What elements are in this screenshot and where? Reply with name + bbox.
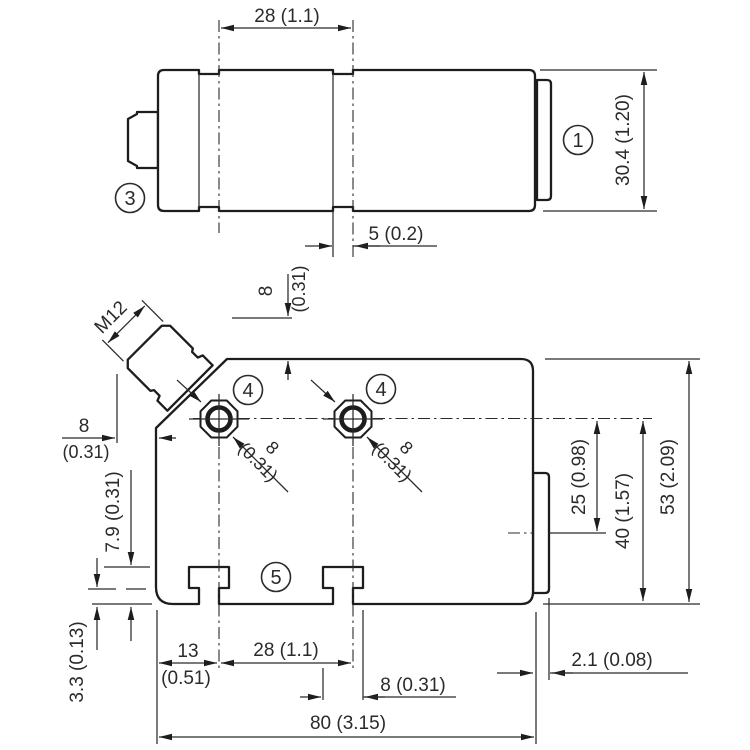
callout-4b: 4 xyxy=(375,379,386,401)
dim-40: 40 (1.57) xyxy=(613,473,634,549)
front-view: M12 4 4 5 8 (0.31) 8 ( xyxy=(62,265,700,744)
top-view-housing-outline xyxy=(158,70,535,211)
dim-13-inch: (0.51) xyxy=(161,668,211,689)
dim-3-3: 3.3 (0.13) xyxy=(67,621,88,702)
dim-m12: M12 xyxy=(91,297,132,338)
top-view-front-flange xyxy=(537,80,551,200)
dim-28-bottom: 28 (1.1) xyxy=(253,640,318,661)
callout-1: 1 xyxy=(572,130,583,152)
dim-conn-left-inch: (0.31) xyxy=(62,442,109,462)
dim-5: 5 (0.2) xyxy=(369,224,424,245)
extension-line xyxy=(142,300,163,321)
dim-80: 80 (3.15) xyxy=(310,713,386,734)
callout-4a: 4 xyxy=(242,380,253,402)
extension-line xyxy=(102,340,123,361)
dim-7-9: 7.9 (0.31) xyxy=(103,471,124,552)
dim-conn-left-value: 8 xyxy=(79,416,90,437)
dim-53: 53 (2.09) xyxy=(658,439,679,515)
dim-30-4: 30.4 (1.20) xyxy=(613,94,634,186)
callout-3: 3 xyxy=(124,188,135,210)
top-view-connector-block xyxy=(128,112,158,168)
front-view-side-flange xyxy=(533,473,549,593)
front-view-housing-outline xyxy=(156,359,533,604)
callout-5: 5 xyxy=(270,567,281,589)
dim-2-1: 2.1 (0.08) xyxy=(571,650,652,671)
dim-25: 25 (0.98) xyxy=(569,439,590,515)
dim-conn-top-value: 8 xyxy=(256,286,277,297)
dimensional-drawing-page: 28 (1.1) 30.4 (1.20) 5 (0.2) 3 1 M12 xyxy=(0,0,750,750)
dim-8-slot: 8 (0.31) xyxy=(380,675,445,696)
top-view: 28 (1.1) 30.4 (1.20) 5 (0.2) 3 1 xyxy=(116,6,658,257)
dim-13-value: 13 xyxy=(177,641,198,662)
sensor-dimensional-drawing: 28 (1.1) 30.4 (1.20) 5 (0.2) 3 1 M12 xyxy=(0,0,750,750)
dim-conn-top-inch: (0.31) xyxy=(289,265,309,312)
dim-28-top: 28 (1.1) xyxy=(254,6,319,27)
